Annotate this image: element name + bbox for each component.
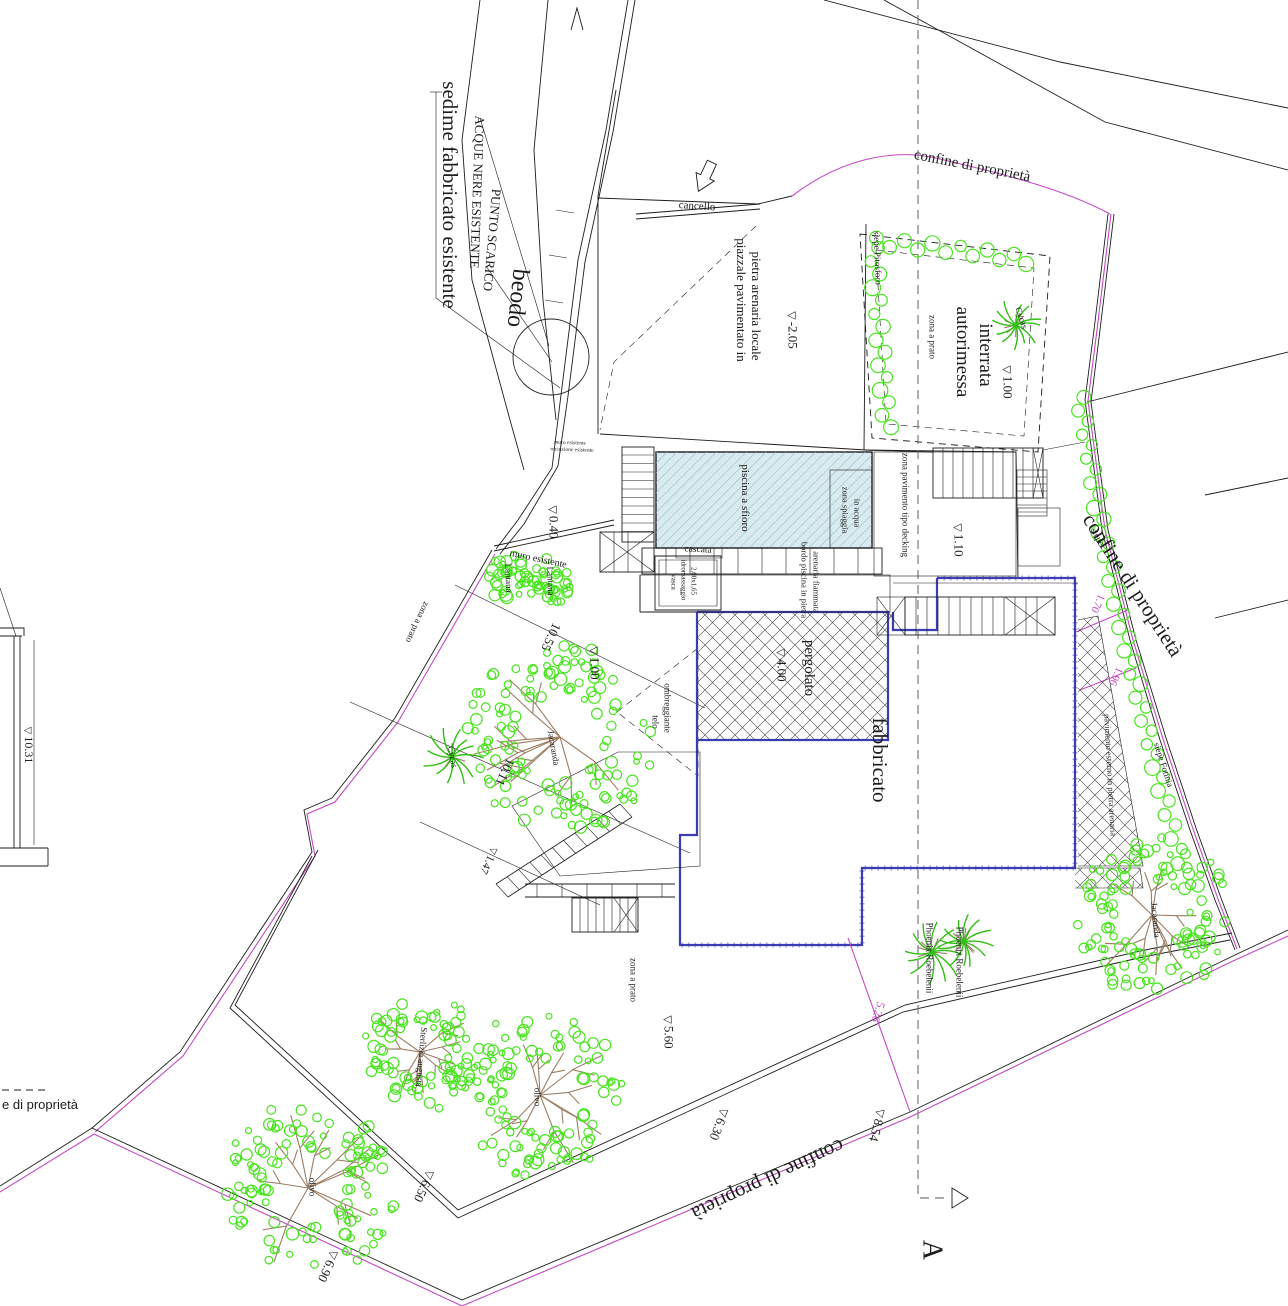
tree-symbol bbox=[528, 554, 573, 606]
palm-symbol bbox=[992, 301, 1041, 350]
tree-symbol bbox=[222, 1105, 399, 1268]
tree-symbol bbox=[485, 552, 534, 604]
tree-symbol bbox=[458, 1013, 625, 1179]
site-plan-svg bbox=[0, 0, 1288, 1306]
palm-symbol bbox=[424, 728, 484, 784]
site-plan-drawing: sedime fabbricato esistenteACQUE NERE ES… bbox=[0, 0, 1288, 1306]
palm-symbol bbox=[905, 922, 962, 985]
hedge-symbol bbox=[865, 242, 899, 435]
palm-symbol bbox=[938, 914, 993, 966]
boundaries-and-structures bbox=[0, 0, 1288, 1306]
